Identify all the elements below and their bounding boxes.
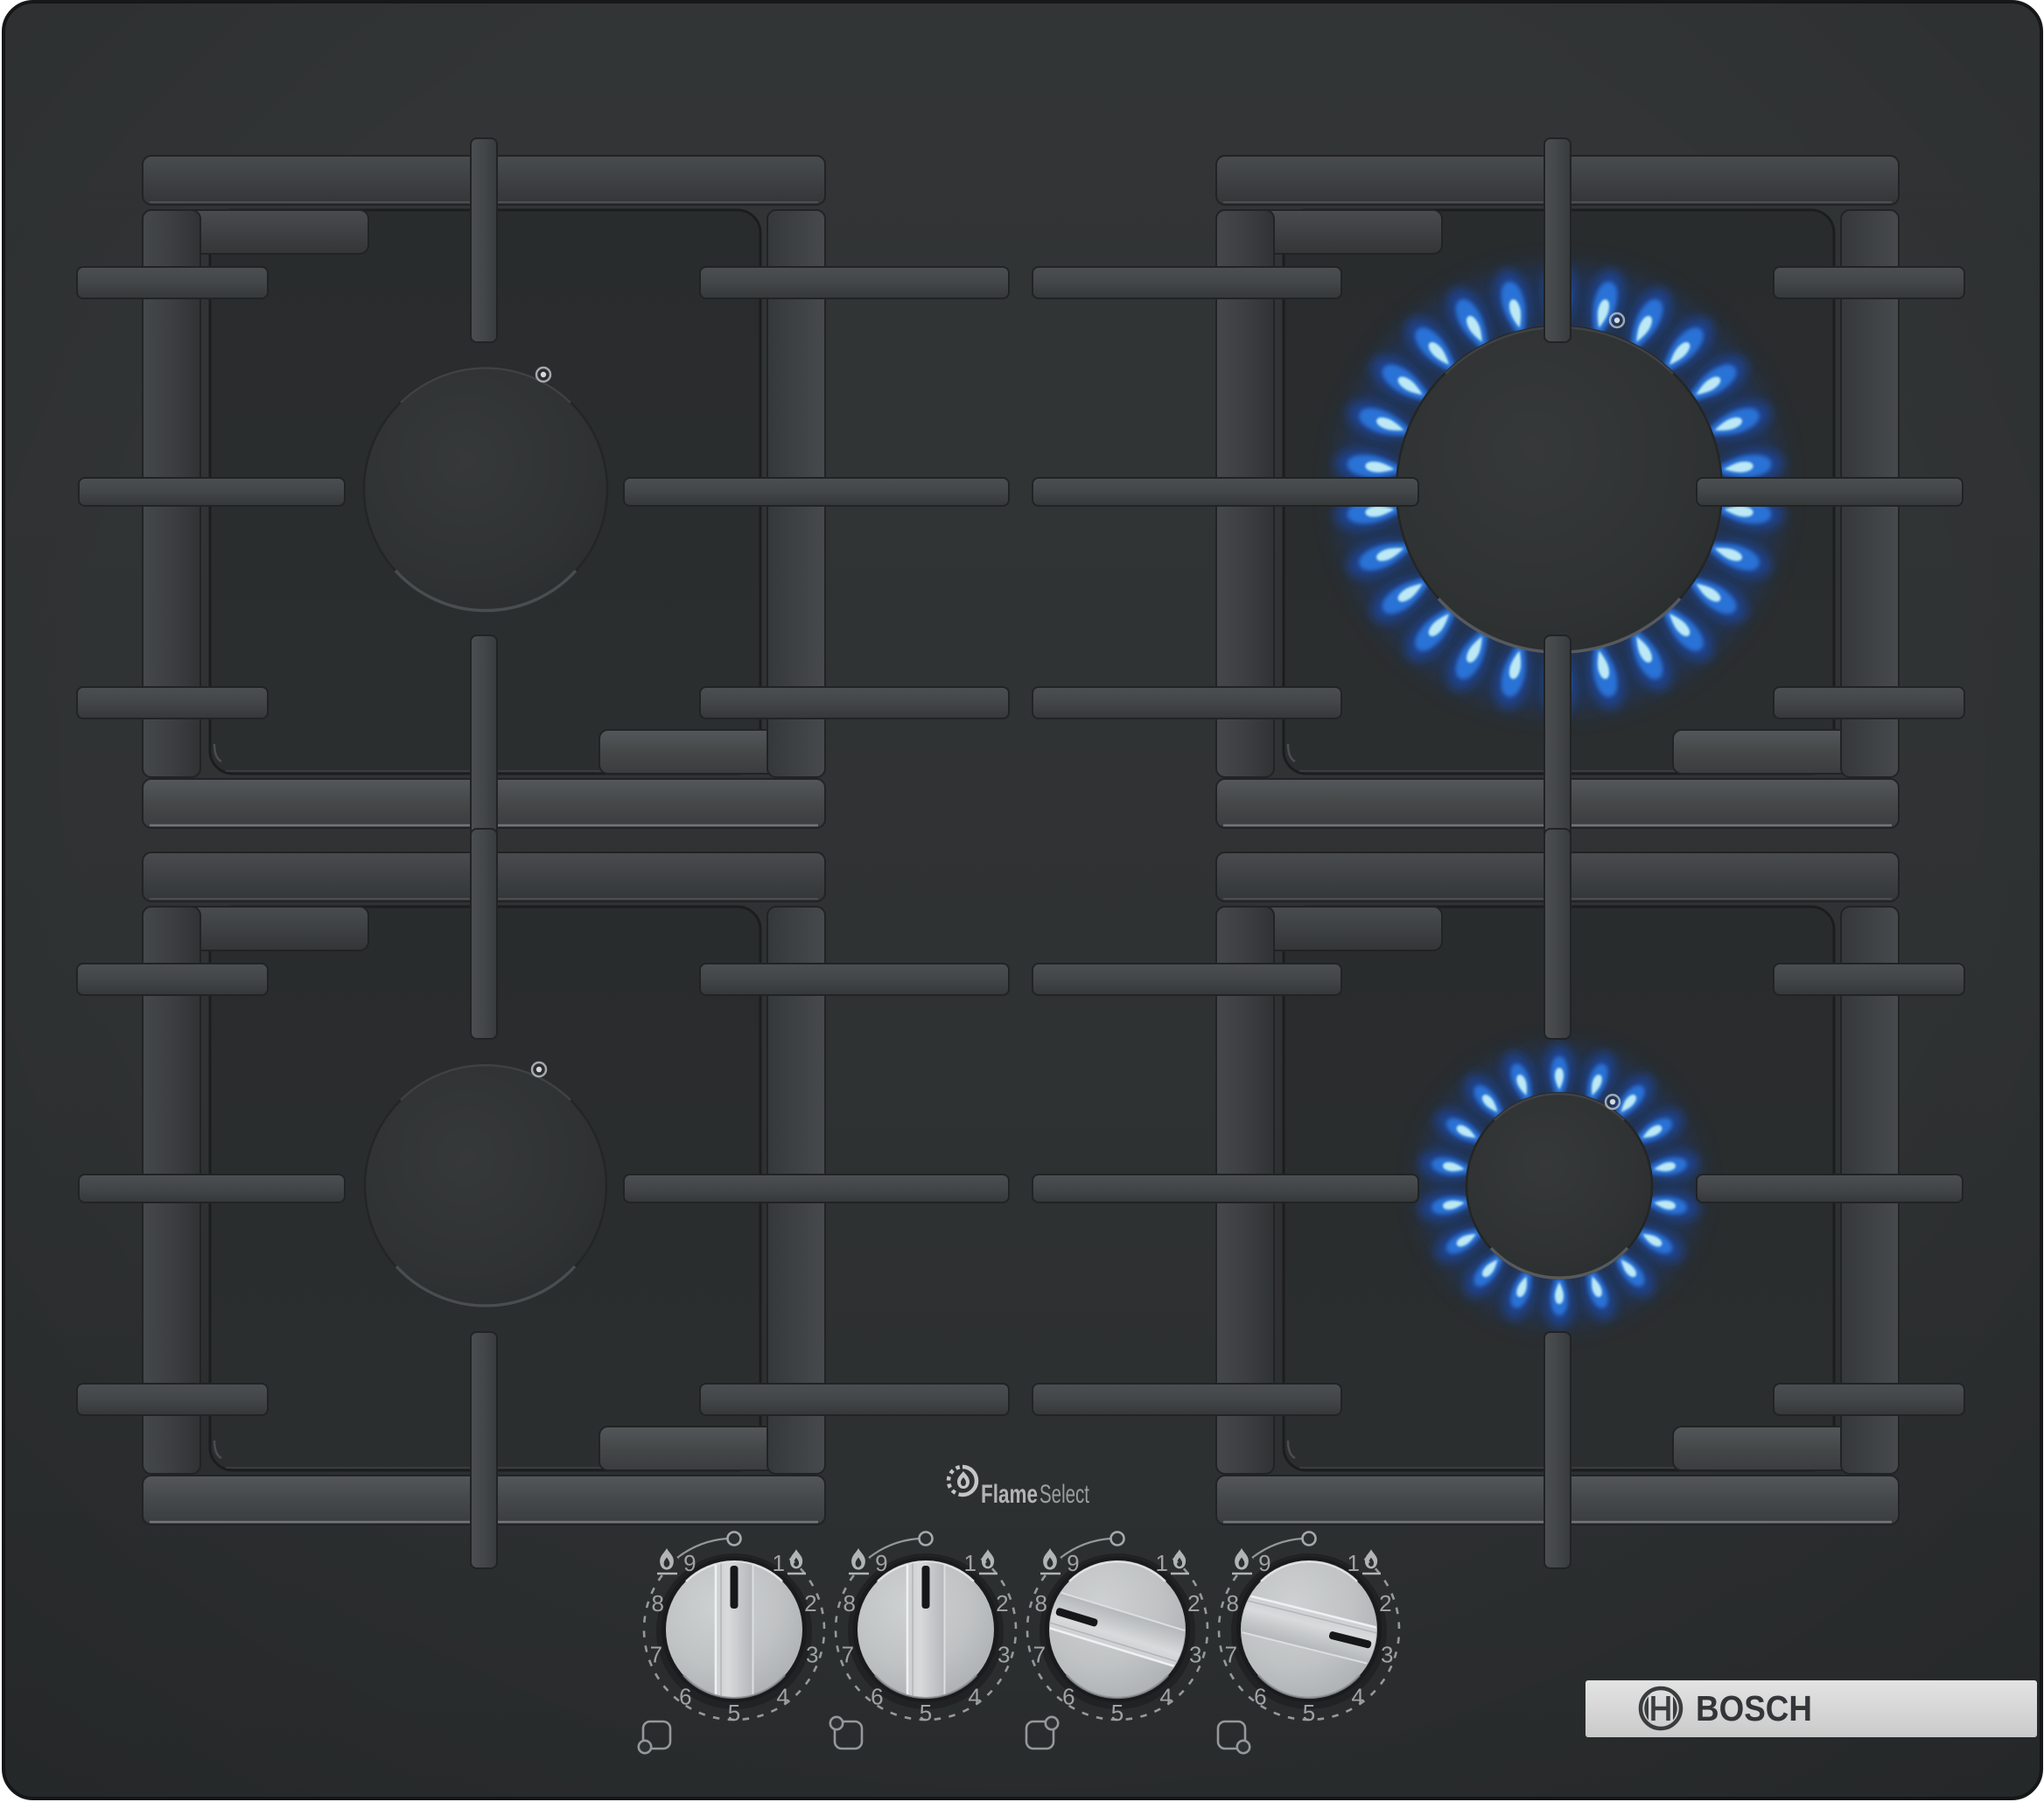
- svg-text:6: 6: [1062, 1684, 1074, 1710]
- svg-text:5: 5: [728, 1700, 740, 1726]
- svg-text:5: 5: [1111, 1700, 1123, 1726]
- svg-text:8: 8: [1226, 1590, 1238, 1616]
- svg-text:4: 4: [1159, 1684, 1172, 1710]
- svg-text:9: 9: [1067, 1550, 1079, 1576]
- svg-text:4: 4: [968, 1684, 980, 1710]
- svg-text:3: 3: [1381, 1641, 1393, 1667]
- svg-text:3: 3: [1189, 1641, 1201, 1667]
- svg-text:4: 4: [1351, 1684, 1363, 1710]
- svg-text:2: 2: [1379, 1590, 1391, 1616]
- svg-text:1: 1: [1347, 1550, 1359, 1576]
- svg-text:9: 9: [875, 1550, 887, 1576]
- svg-text:3: 3: [997, 1641, 1010, 1667]
- svg-text:6: 6: [679, 1684, 691, 1710]
- svg-text:6: 6: [871, 1684, 883, 1710]
- svg-text:9: 9: [683, 1550, 696, 1576]
- svg-text:Flame: Flame: [981, 1480, 1038, 1509]
- svg-text:8: 8: [651, 1590, 663, 1616]
- svg-text:1: 1: [963, 1550, 976, 1576]
- svg-text:3: 3: [806, 1641, 818, 1667]
- svg-text:7: 7: [1225, 1641, 1237, 1667]
- svg-text:2: 2: [804, 1590, 816, 1616]
- svg-text:5: 5: [1303, 1700, 1315, 1726]
- svg-text:8: 8: [1034, 1590, 1046, 1616]
- svg-text:9: 9: [1258, 1550, 1270, 1576]
- svg-text:Select: Select: [1039, 1480, 1089, 1509]
- svg-text:8: 8: [843, 1590, 855, 1616]
- svg-text:6: 6: [1254, 1684, 1266, 1710]
- svg-text:BOSCH: BOSCH: [1696, 1688, 1812, 1728]
- svg-text:4: 4: [776, 1684, 788, 1710]
- svg-text:7: 7: [650, 1641, 662, 1667]
- svg-text:7: 7: [842, 1641, 854, 1667]
- svg-text:2: 2: [1187, 1590, 1200, 1616]
- svg-text:5: 5: [920, 1700, 932, 1726]
- svg-text:2: 2: [996, 1590, 1008, 1616]
- svg-text:1: 1: [772, 1550, 784, 1576]
- svg-text:7: 7: [1033, 1641, 1046, 1667]
- svg-text:1: 1: [1155, 1550, 1167, 1576]
